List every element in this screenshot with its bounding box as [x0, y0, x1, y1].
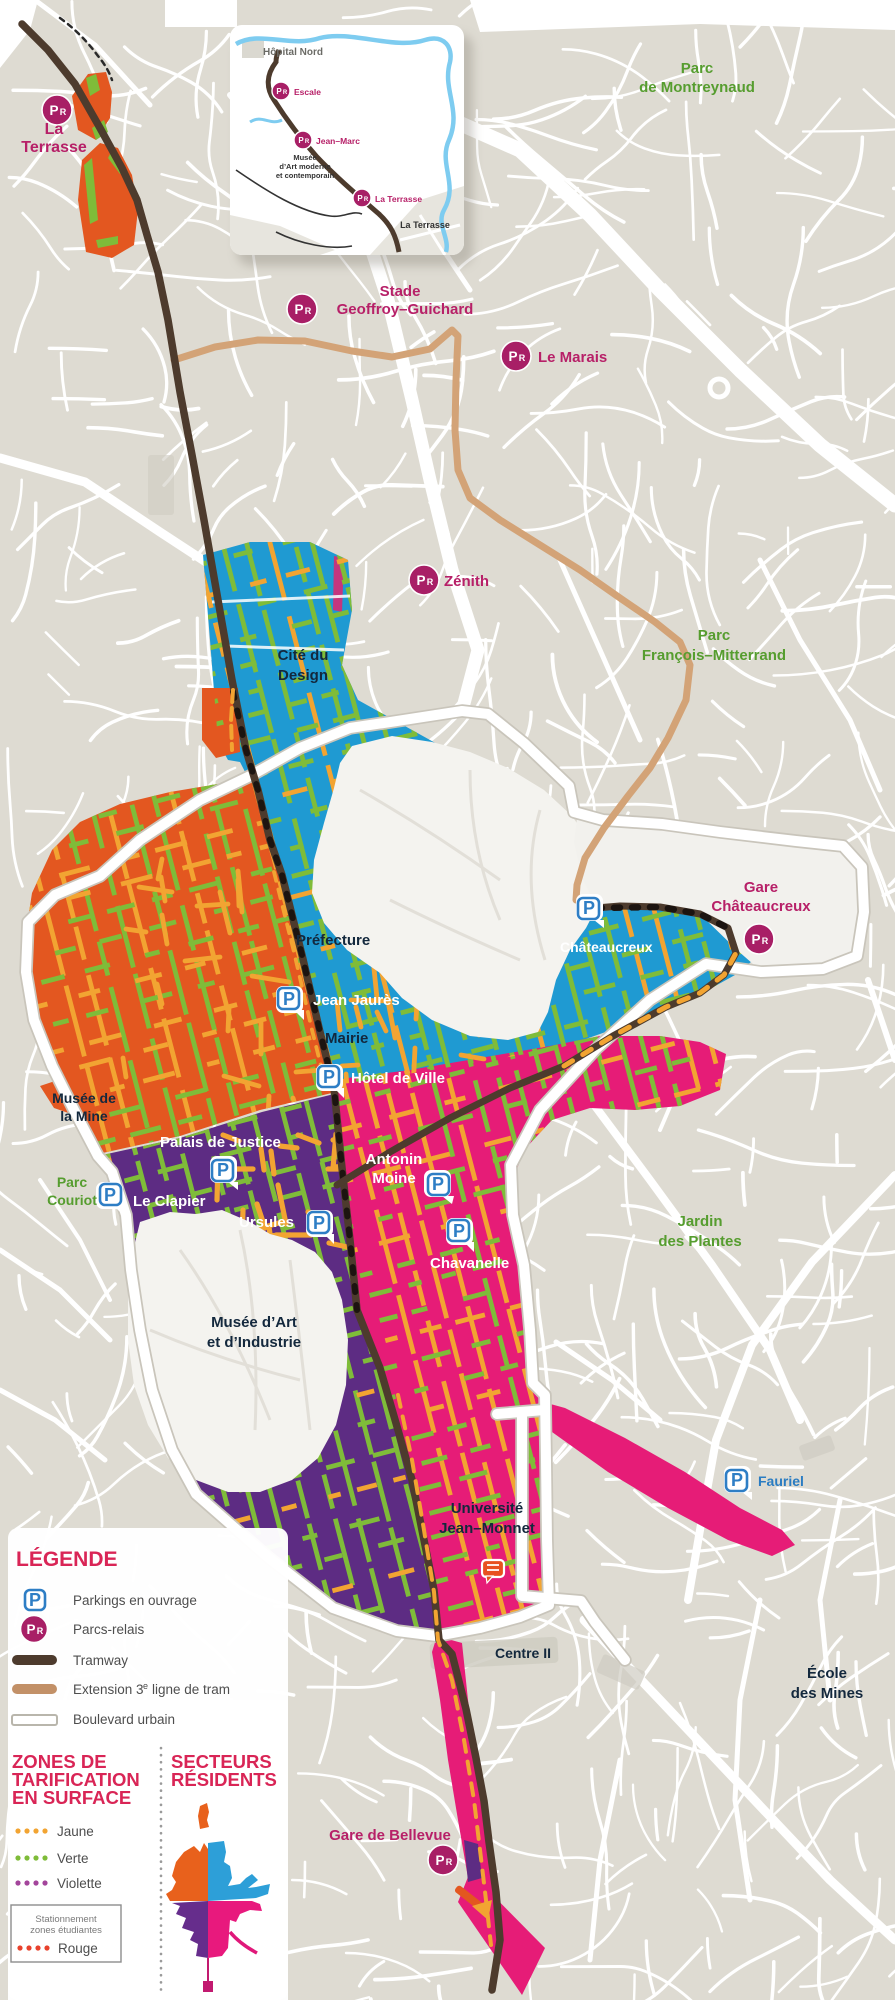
- svg-text:Jaune: Jaune: [57, 1824, 94, 1839]
- svg-text:Parc: Parc: [57, 1174, 88, 1190]
- svg-text:Stationnement: Stationnement: [35, 1914, 97, 1925]
- svg-text:R: R: [519, 353, 526, 363]
- svg-text:d’Art moderne: d’Art moderne: [279, 162, 330, 171]
- svg-text:P: P: [416, 573, 425, 588]
- svg-text:Chavanelle: Chavanelle: [430, 1255, 509, 1272]
- svg-text:R: R: [305, 306, 312, 316]
- svg-text:P: P: [751, 932, 760, 947]
- svg-text:P: P: [104, 1185, 116, 1205]
- svg-text:Rouge: Rouge: [58, 1941, 98, 1956]
- svg-text:La Terrasse: La Terrasse: [375, 194, 422, 204]
- svg-text:Tramway: Tramway: [73, 1653, 128, 1668]
- svg-text:Hôtel de Ville: Hôtel de Ville: [351, 1070, 445, 1087]
- svg-text:R: R: [37, 1626, 44, 1636]
- svg-text:Gare de Bellevue: Gare de Bellevue: [329, 1827, 451, 1844]
- svg-text:Musée de: Musée de: [52, 1090, 116, 1106]
- svg-text:École: École: [807, 1665, 847, 1682]
- svg-text:P: P: [357, 194, 363, 203]
- svg-text:P: P: [217, 1160, 229, 1180]
- svg-text:P: P: [508, 349, 517, 364]
- svg-text:Verte: Verte: [57, 1851, 89, 1866]
- svg-text:Boulevard urbain: Boulevard urbain: [73, 1712, 175, 1727]
- svg-text:Design: Design: [278, 667, 328, 684]
- svg-text:Terrasse: Terrasse: [21, 139, 87, 156]
- svg-text:Palais de Justice: Palais de Justice: [160, 1134, 281, 1151]
- svg-text:EN SURFACE: EN SURFACE: [12, 1787, 131, 1808]
- svg-text:Jean Jaurès: Jean Jaurès: [313, 992, 400, 1009]
- svg-text:Couriot: Couriot: [47, 1192, 97, 1208]
- svg-text:Geoffroy–Guichard: Geoffroy–Guichard: [337, 301, 474, 318]
- svg-text:Zénith: Zénith: [444, 573, 489, 590]
- svg-text:La Terrasse: La Terrasse: [400, 220, 450, 230]
- svg-text:R: R: [283, 90, 288, 96]
- svg-text:François–Mitterrand: François–Mitterrand: [642, 647, 786, 664]
- svg-text:Mairie: Mairie: [325, 1030, 368, 1047]
- svg-text:et contemporain: et contemporain: [276, 171, 335, 180]
- svg-text:R: R: [446, 1857, 453, 1867]
- svg-text:Châteaucreux: Châteaucreux: [711, 898, 811, 915]
- svg-text:Cité du: Cité du: [278, 647, 329, 664]
- svg-text:P: P: [583, 898, 595, 918]
- svg-text:Jean–Monnet: Jean–Monnet: [439, 1520, 535, 1537]
- svg-text:LÉGENDE: LÉGENDE: [16, 1548, 118, 1571]
- svg-text:Extension 3: Extension 3: [73, 1682, 144, 1697]
- svg-text:Fauriel: Fauriel: [758, 1473, 804, 1489]
- svg-text:P: P: [283, 989, 295, 1009]
- svg-text:P: P: [26, 1622, 35, 1637]
- svg-text:Parc: Parc: [698, 627, 731, 644]
- svg-text:R: R: [364, 197, 369, 203]
- svg-text:Antonin: Antonin: [366, 1151, 423, 1168]
- svg-text:P: P: [323, 1067, 335, 1087]
- svg-text:Violette: Violette: [57, 1876, 102, 1891]
- svg-text:P: P: [435, 1853, 444, 1868]
- svg-text:et d’Industrie: et d’Industrie: [207, 1334, 301, 1351]
- svg-text:P: P: [313, 1213, 325, 1233]
- svg-text:P: P: [298, 136, 304, 145]
- svg-text:Moine: Moine: [372, 1170, 415, 1187]
- svg-text:Centre II: Centre II: [495, 1645, 551, 1661]
- svg-text:R: R: [427, 577, 434, 587]
- svg-text:R: R: [762, 936, 769, 946]
- svg-text:la Mine: la Mine: [60, 1108, 108, 1124]
- svg-text:Gare: Gare: [744, 879, 778, 896]
- svg-text:ligne de tram: ligne de tram: [152, 1682, 230, 1697]
- svg-text:RÉSIDENTS: RÉSIDENTS: [171, 1769, 277, 1790]
- svg-text:P: P: [29, 1590, 41, 1610]
- svg-text:des Mines: des Mines: [791, 1685, 864, 1702]
- svg-text:Châteaucreux: Châteaucreux: [560, 939, 653, 955]
- svg-text:Musée d’Art: Musée d’Art: [211, 1314, 297, 1331]
- svg-text:P: P: [731, 1470, 743, 1490]
- svg-text:Le Clapier: Le Clapier: [133, 1193, 206, 1210]
- svg-text:R: R: [60, 107, 67, 117]
- svg-text:de Montreynaud: de Montreynaud: [639, 79, 755, 96]
- svg-text:Stade: Stade: [380, 283, 421, 300]
- svg-text:des Plantes: des Plantes: [658, 1233, 741, 1250]
- svg-text:Université: Université: [451, 1500, 524, 1517]
- svg-text:P: P: [49, 103, 58, 118]
- svg-text:P: P: [294, 302, 303, 317]
- svg-text:La: La: [45, 121, 64, 138]
- svg-text:Parcs-relais: Parcs-relais: [73, 1622, 145, 1637]
- svg-text:Musée: Musée: [293, 153, 316, 162]
- svg-text:e: e: [143, 1681, 148, 1691]
- svg-text:Jean–Marc: Jean–Marc: [316, 136, 360, 146]
- svg-text:Le Marais: Le Marais: [538, 349, 607, 366]
- svg-text:Ursules: Ursules: [239, 1214, 294, 1231]
- svg-text:R: R: [305, 139, 310, 145]
- svg-text:P: P: [276, 87, 282, 96]
- svg-text:Préfecture: Préfecture: [296, 932, 370, 949]
- svg-text:Parkings en ouvrage: Parkings en ouvrage: [73, 1593, 197, 1608]
- svg-text:P: P: [432, 1174, 444, 1194]
- svg-text:Parc: Parc: [681, 60, 714, 77]
- svg-text:Jardin: Jardin: [677, 1213, 722, 1230]
- svg-text:zones étudiantes: zones étudiantes: [30, 1925, 102, 1936]
- svg-text:Hôpital Nord: Hôpital Nord: [263, 47, 323, 58]
- svg-text:P: P: [453, 1221, 465, 1241]
- svg-text:Escale: Escale: [294, 87, 321, 97]
